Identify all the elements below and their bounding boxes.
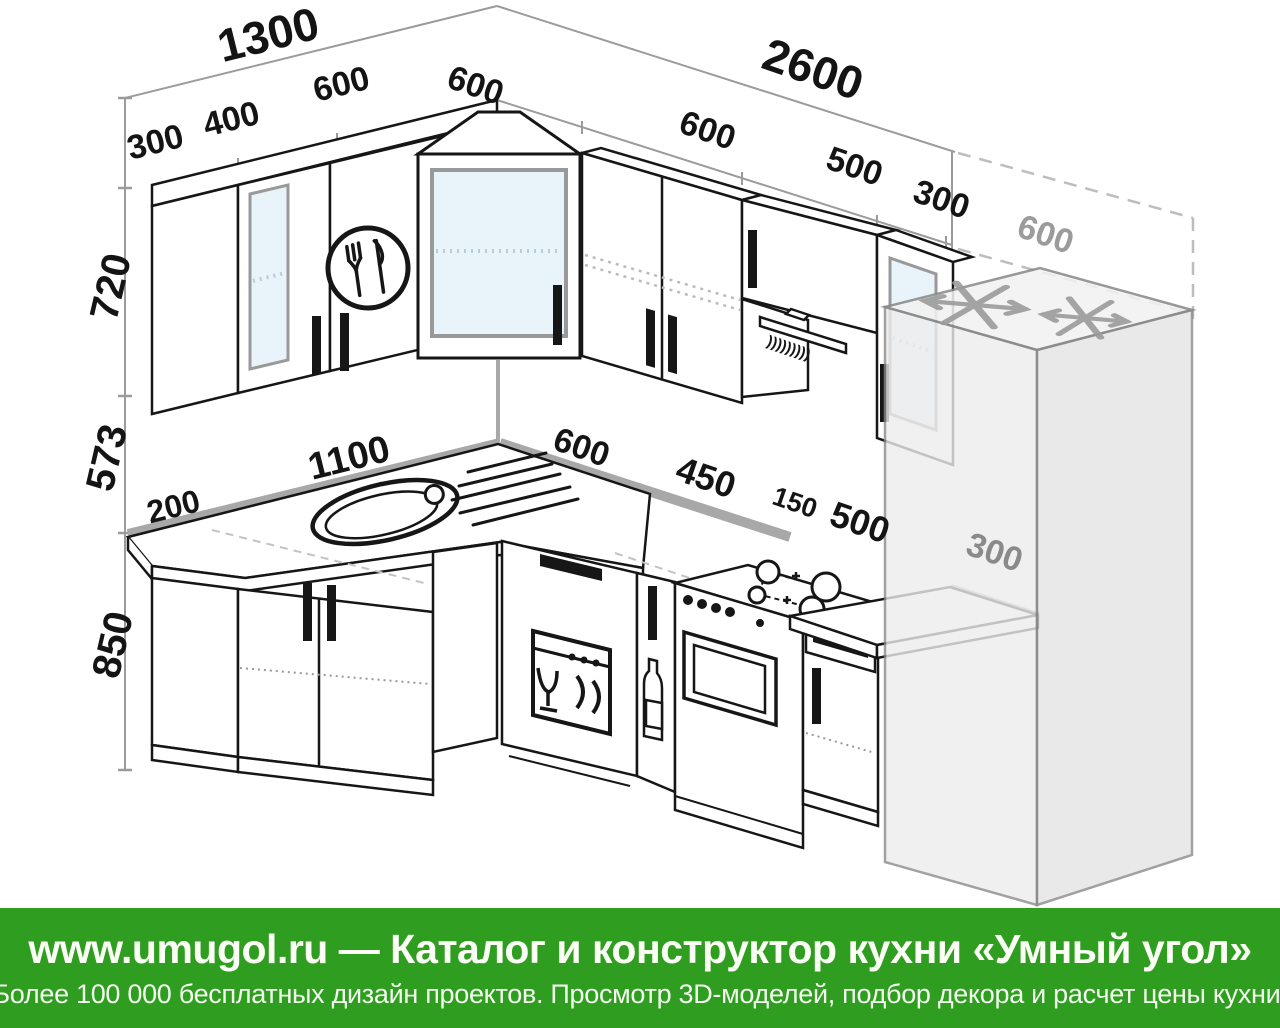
- dim-total-right: 2600: [756, 28, 870, 110]
- dim-height-573: 573: [78, 420, 136, 495]
- dim-upper-left-300: 300: [123, 117, 187, 168]
- dishwasher: [502, 541, 637, 786]
- handle: [648, 586, 657, 640]
- handle: [553, 285, 562, 345]
- dim-base-150: 150: [769, 481, 821, 524]
- kitchen-isometric-drawing: ))))))))): [0, 0, 1280, 908]
- upper-cabinet-300: [152, 185, 238, 414]
- dim-total-left: 1300: [212, 0, 324, 72]
- upper-cabinets-right: [582, 148, 896, 403]
- cutlery-logo-icon: [328, 228, 408, 308]
- dim-upper-right-500: 500: [822, 139, 888, 193]
- dim-height-720: 720: [82, 249, 140, 324]
- handle: [812, 668, 821, 724]
- dim-upper-right-600b: 600: [675, 103, 741, 157]
- dim-height-850: 850: [84, 607, 142, 682]
- handle: [748, 230, 757, 288]
- cargo-bottle-cabinet: [637, 573, 675, 792]
- footer-banner: www.umugol.ru — Каталог и конструктор ку…: [0, 908, 1280, 1028]
- fridge-front: [885, 307, 1037, 905]
- handle: [327, 585, 336, 641]
- handle: [303, 583, 312, 641]
- handle: [646, 308, 655, 368]
- dim-upper-right-600-gray: 600: [1013, 207, 1079, 261]
- fridge-side: [1037, 310, 1192, 905]
- dim-upper-left-600: 600: [309, 59, 373, 110]
- dim-upper-right-600a: 600: [443, 58, 509, 112]
- dim-upper-right-300: 300: [909, 172, 975, 226]
- corner-wall-cabinet: [418, 112, 580, 358]
- glass-strip-door: [250, 185, 288, 369]
- handle: [668, 315, 677, 375]
- site-subtitle-line: Более 100 000 бесплатных дизайн проектов…: [0, 979, 1280, 1010]
- kitchen-diagram-page: ))))))))): [0, 0, 1280, 1028]
- handle: [340, 313, 349, 371]
- fridge: [885, 268, 1192, 905]
- site-title-line: www.umugol.ru — Каталог и конструктор ку…: [28, 926, 1251, 973]
- dim-upper-left-400: 400: [199, 94, 263, 145]
- handle: [312, 316, 321, 374]
